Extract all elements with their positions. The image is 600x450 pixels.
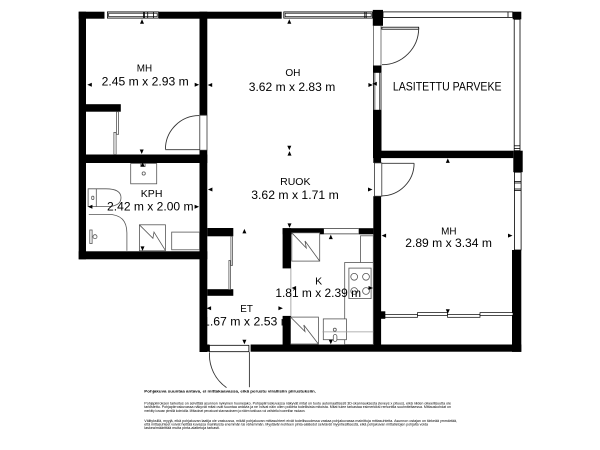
svg-text:RUOK: RUOK [280,176,310,188]
svg-text:1.81 m x 2.39 m: 1.81 m x 2.39 m [275,286,361,300]
svg-text:LASITETTU PARVEKE: LASITETTU PARVEKE [393,80,502,94]
svg-text:merkitty kuvaan pienillä kolmi: merkitty kuvaan pienillä kolmioilla. Mit… [144,409,305,413]
svg-text:laskea/määrittää muita pinta-a: laskea/määrittää muita pinta-alatietoja … [144,426,220,430]
svg-text:2.45 m x 2.93 m: 2.45 m x 2.93 m [102,75,189,89]
svg-text:KPH: KPH [141,188,163,200]
svg-text:2.42 m x 2.00 m: 2.42 m x 2.00 m [107,200,194,214]
svg-text:MH: MH [137,63,152,75]
svg-text:1.67 m x 2.53 m: 1.67 m x 2.53 m [203,314,291,328]
svg-text:3.62 m x 2.83 m: 3.62 m x 2.83 m [249,80,336,94]
svg-text:2.89 m x 3.34 m: 2.89 m x 3.34 m [405,236,492,250]
svg-text:ET: ET [240,303,253,315]
svg-text:3.62 m x 1.71 m: 3.62 m x 1.71 m [251,188,339,202]
svg-text:OH: OH [285,67,300,79]
svg-text:Pohjakuva suuntaa antava, ei m: Pohjakuva suuntaa antava, ei mittakaavas… [144,389,316,393]
